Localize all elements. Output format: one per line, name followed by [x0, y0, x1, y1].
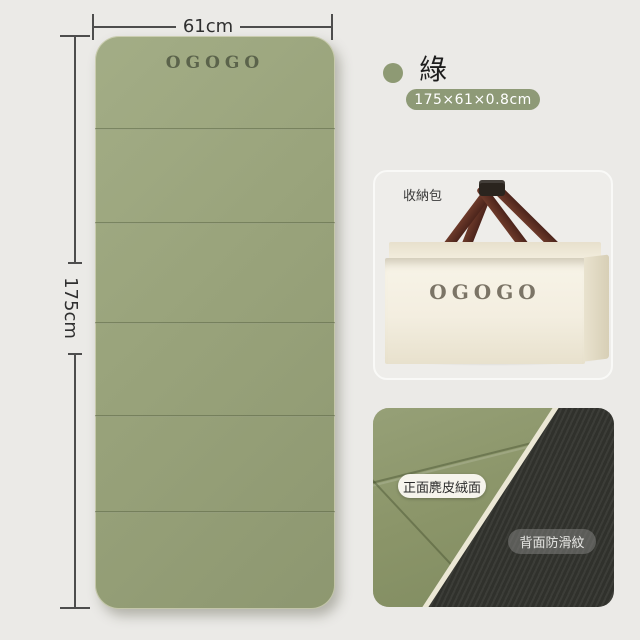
width-dim-line	[93, 26, 176, 28]
mat-brand-logo: OGOGO	[95, 53, 335, 73]
color-name: 綠	[419, 54, 447, 86]
width-dim-line	[240, 26, 332, 28]
product-image: 61cm 175cm OGOGO 綠 175×61×0.8cm 收納包 OGOG…	[0, 0, 640, 640]
front-texture-label: 正面麂皮絨面	[398, 474, 486, 498]
length-dim-label: 175cm	[60, 273, 80, 343]
mat-fold-line	[95, 128, 335, 130]
width-dim-label: 61cm	[168, 17, 248, 37]
size-badge: 175×61×0.8cm	[406, 89, 540, 110]
back-texture-label: 背面防滑紋	[508, 529, 596, 554]
length-dim-tick-bottom	[60, 607, 90, 609]
mat-fold-line	[95, 415, 335, 417]
length-dim-line	[74, 36, 76, 262]
color-swatch-dot	[383, 63, 403, 83]
storage-bag-label: 收納包	[403, 185, 442, 204]
mat-fold-line	[95, 222, 335, 224]
length-dim-break-mark	[68, 262, 82, 264]
storage-bag-side	[584, 254, 609, 361]
mat-fold-line	[95, 322, 335, 324]
mat-fold-line	[95, 511, 335, 513]
texture-photo: 正面麂皮絨面 背面防滑紋	[373, 408, 614, 607]
storage-bag	[385, 258, 585, 364]
yoga-mat: OGOGO	[95, 36, 335, 609]
length-dim-line	[74, 354, 76, 607]
storage-bag-card: 收納包 OGOGO	[373, 170, 613, 380]
bag-brand-logo: OGOGO	[385, 280, 585, 304]
bag-handle-buckle	[479, 180, 505, 196]
